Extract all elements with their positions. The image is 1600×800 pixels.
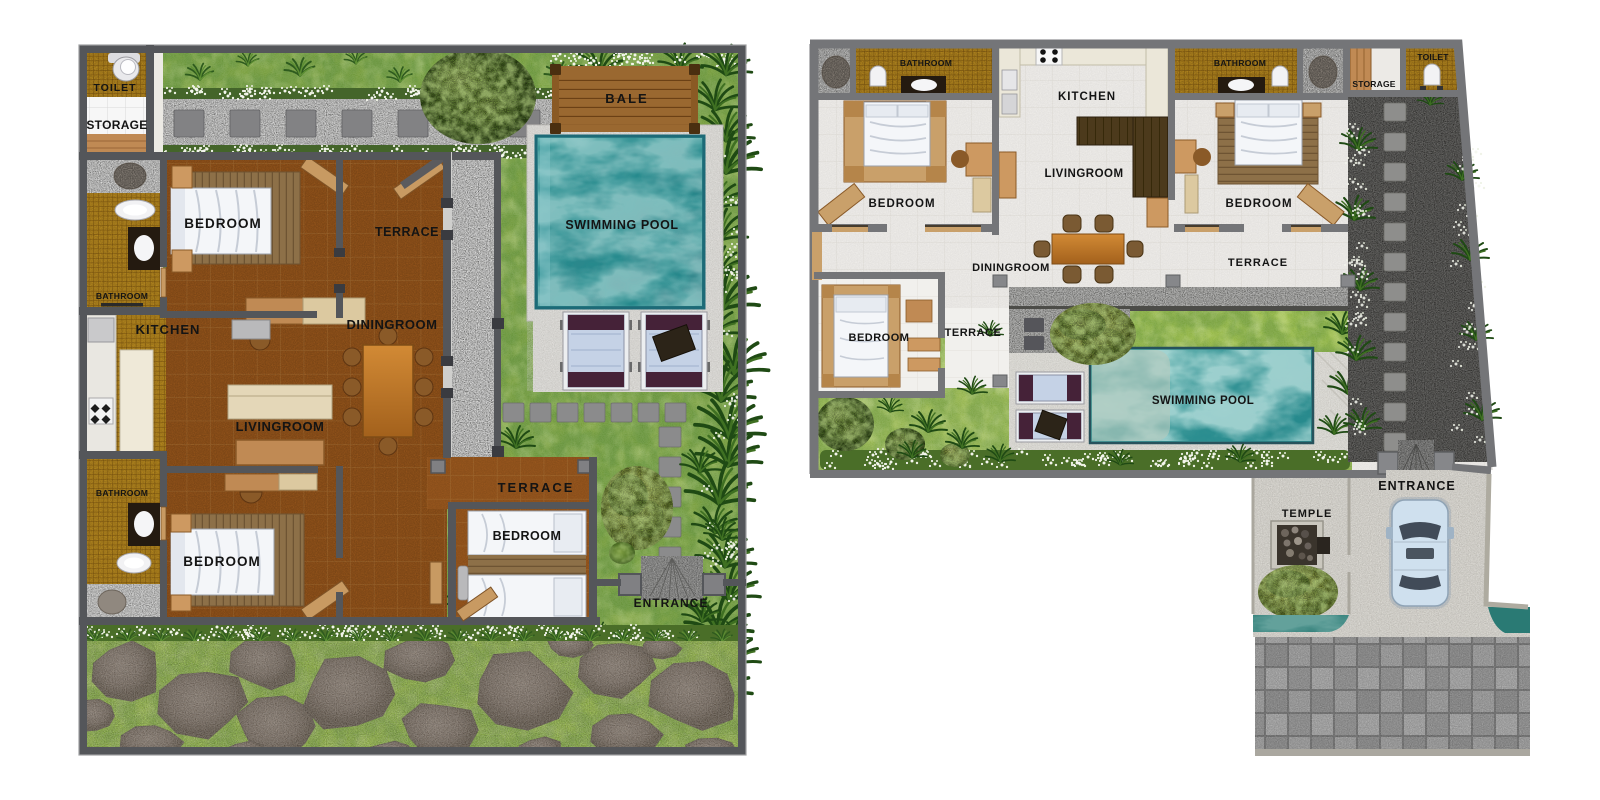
svg-text:TOILET: TOILET bbox=[1417, 52, 1449, 62]
svg-text:BATHROOM: BATHROOM bbox=[1214, 58, 1266, 68]
svg-text:TERRACE: TERRACE bbox=[945, 327, 1002, 339]
svg-text:KITCHEN: KITCHEN bbox=[136, 322, 201, 337]
svg-text:SWIMMING POOL: SWIMMING POOL bbox=[1152, 395, 1254, 407]
svg-text:DININGROOM: DININGROOM bbox=[347, 317, 438, 332]
svg-text:BEDROOM: BEDROOM bbox=[183, 554, 261, 569]
svg-text:KITCHEN: KITCHEN bbox=[1058, 91, 1116, 103]
svg-text:BATHROOM: BATHROOM bbox=[96, 488, 148, 498]
svg-text:TERRACE: TERRACE bbox=[375, 225, 439, 239]
svg-text:BATHROOM: BATHROOM bbox=[900, 58, 952, 68]
svg-text:BEDROOM: BEDROOM bbox=[849, 332, 910, 344]
svg-text:STORAGE: STORAGE bbox=[1352, 79, 1395, 89]
svg-text:BEDROOM: BEDROOM bbox=[184, 216, 262, 231]
svg-text:LIVINGROOM: LIVINGROOM bbox=[236, 419, 325, 434]
svg-text:STORAGE: STORAGE bbox=[86, 118, 147, 132]
svg-text:BEDROOM: BEDROOM bbox=[868, 198, 935, 210]
svg-text:BALE: BALE bbox=[605, 91, 648, 106]
svg-text:BEDROOM: BEDROOM bbox=[1225, 198, 1292, 210]
svg-text:TERRACE: TERRACE bbox=[1228, 257, 1288, 269]
svg-text:BATHROOM: BATHROOM bbox=[96, 291, 148, 301]
svg-text:BEDROOM: BEDROOM bbox=[493, 529, 562, 543]
svg-text:ENTRANCE: ENTRANCE bbox=[634, 596, 709, 610]
svg-text:TEMPLE: TEMPLE bbox=[1282, 508, 1333, 520]
svg-text:DININGROOM: DININGROOM bbox=[972, 262, 1050, 274]
svg-text:ENTRANCE: ENTRANCE bbox=[1378, 479, 1455, 493]
svg-text:TERRACE: TERRACE bbox=[498, 480, 575, 495]
svg-text:LIVINGROOM: LIVINGROOM bbox=[1044, 168, 1123, 180]
svg-text:TOILET: TOILET bbox=[93, 82, 136, 94]
svg-text:SWIMMING POOL: SWIMMING POOL bbox=[565, 218, 678, 232]
